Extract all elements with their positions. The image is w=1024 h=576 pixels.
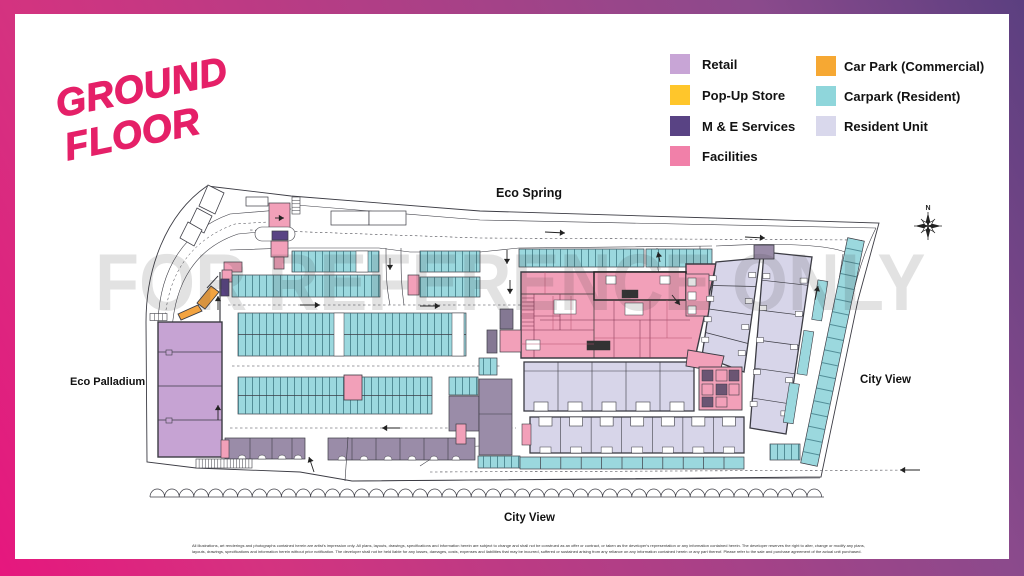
svg-text:N: N <box>925 205 930 212</box>
